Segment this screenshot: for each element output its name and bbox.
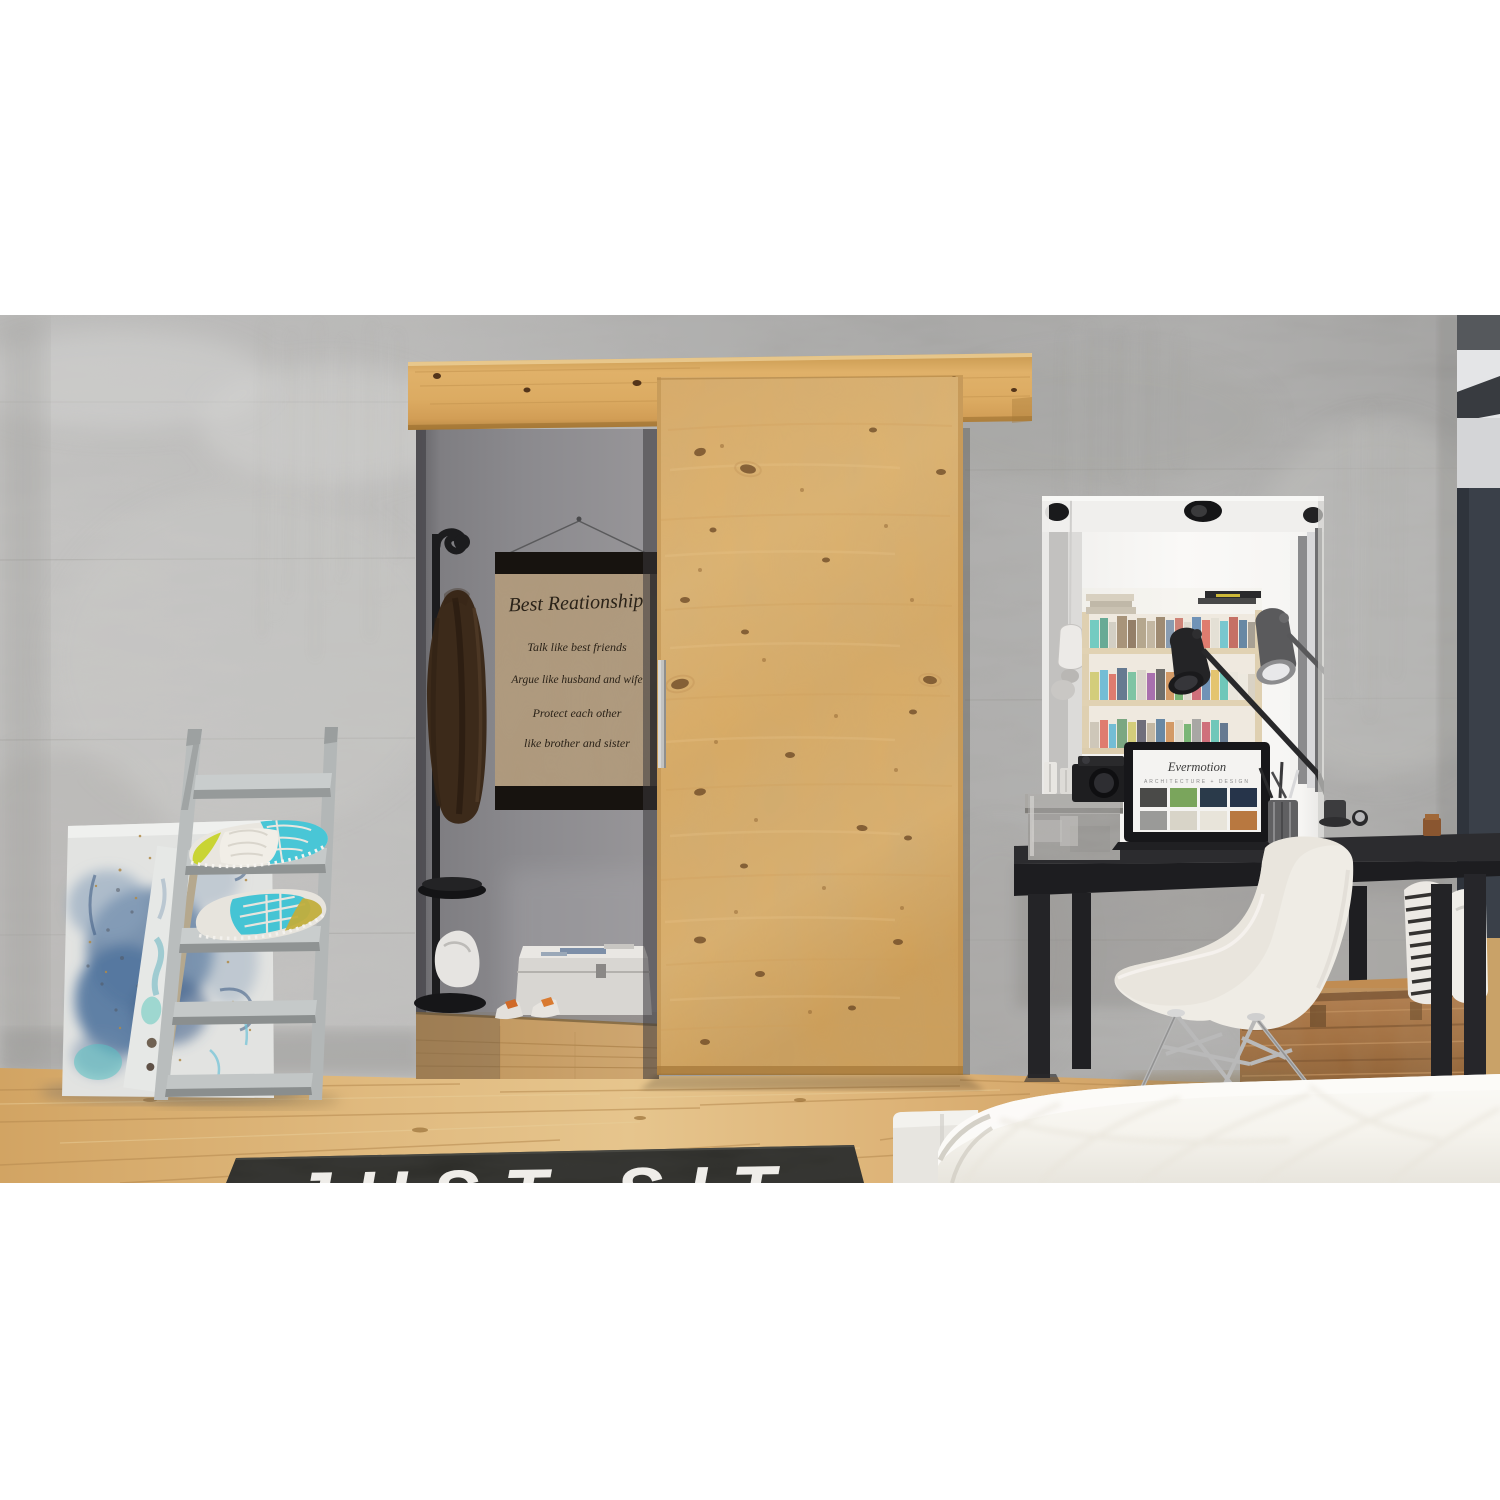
- svg-text:Protect each other: Protect each other: [532, 706, 622, 720]
- svg-text:Talk like best friends: Talk like best friends: [527, 640, 627, 654]
- svg-text:like brother and sister: like brother and sister: [524, 736, 630, 750]
- svg-text:Argue like husband and wife: Argue like husband and wife: [510, 674, 642, 686]
- svg-text:ARCHITECTURE + DESIGN: ARCHITECTURE + DESIGN: [1144, 779, 1250, 785]
- svg-text:Evermotion: Evermotion: [1167, 760, 1226, 774]
- svg-text:Best Reationship: Best Reationship: [508, 590, 644, 617]
